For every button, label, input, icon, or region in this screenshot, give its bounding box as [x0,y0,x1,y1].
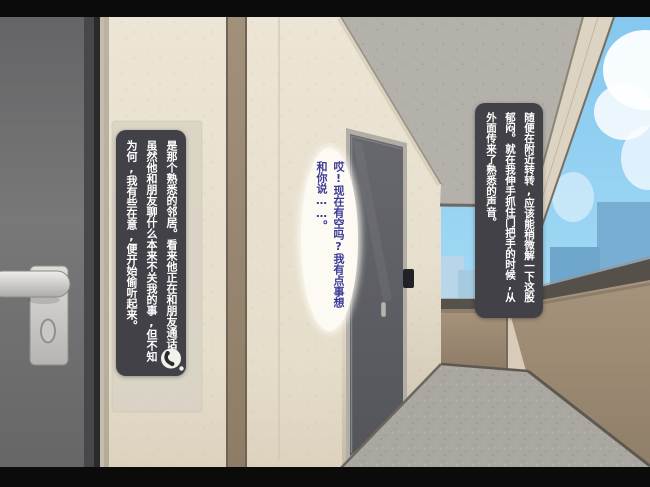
doorbell-intercom [403,269,414,288]
wall-stripe [228,17,245,468]
own-door-edge [84,17,94,468]
door-handle-lever [0,271,70,297]
narration-text-right: 随便在附近转转,应该能稍微解一下这股郁闷。就在我伸手抓住门把手的时候,从外面传来… [475,103,543,318]
phone-receiver-icon [159,347,185,373]
hallway-door-handle [381,302,386,317]
own-door [0,17,109,468]
far-parapet [438,309,510,372]
narration-box-right: 随便在附近转转,应该能稍微解一下这股郁闷。就在我伸手抓住门把手的时候,从外面传来… [475,103,543,318]
stripe-edge-left [226,17,228,468]
own-door-face [0,17,84,468]
own-door-frame-shadow [104,17,109,468]
own-door-gap [94,17,100,468]
vn-scene-stage: 随便在附近转转,应该能稍微解一下这股郁闷。就在我伸手抓住门把手的时候,从外面传来… [0,0,650,487]
letterbox-bottom [0,467,650,487]
speech-bubble: 哎!现在有空吗?我有点事想和你说……。 [301,148,358,331]
narration-box-left: 是那个熟悉的邻居。看来他正在和朋友通话。虽然他和朋友聊什么本来不关我的事,但不知… [116,130,186,376]
own-door-frame [100,17,104,468]
letterbox-top [0,0,650,17]
speech-bubble-text: 哎!现在有空吗?我有点事想和你说……。 [301,148,358,331]
stripe-edge-right [245,17,247,468]
narration-text-left: 是那个熟悉的邻居。看来他正在和朋友通话。虽然他和朋友聊什么本来不关我的事,但不知… [116,130,186,376]
keyhole [41,320,55,343]
